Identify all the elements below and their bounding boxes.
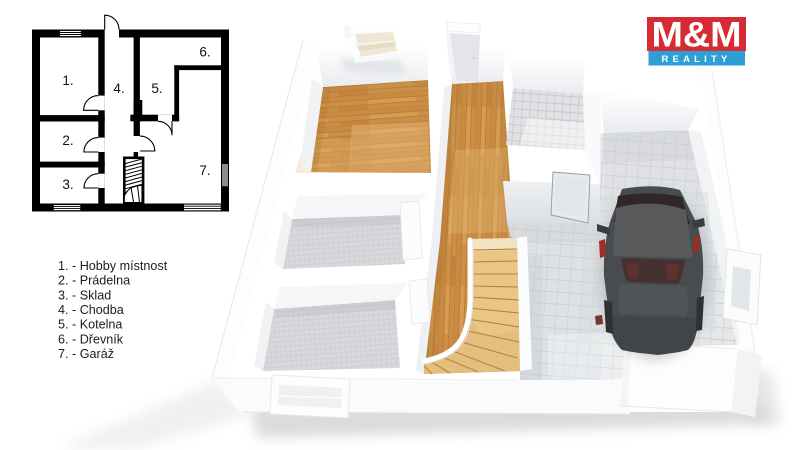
svg-text:1.: 1. <box>62 73 73 88</box>
svg-text:2. - Prádelna: 2. - Prádelna <box>58 274 130 288</box>
svg-text:3.: 3. <box>62 177 73 192</box>
svg-text:4.: 4. <box>113 81 124 96</box>
svg-text:REALITY: REALITY <box>661 54 731 65</box>
svg-text:6. - Dřevník: 6. - Dřevník <box>58 332 124 346</box>
svg-text:M&M: M&M <box>652 16 742 55</box>
svg-text:5.: 5. <box>151 81 162 96</box>
svg-text:3. - Sklad: 3. - Sklad <box>58 288 111 302</box>
svg-text:7.: 7. <box>199 163 210 178</box>
svg-text:7. - Garáž: 7. - Garáž <box>58 347 114 361</box>
svg-text:4. - Chodba: 4. - Chodba <box>58 303 124 317</box>
svg-text:1. - Hobby místnost: 1. - Hobby místnost <box>58 259 168 273</box>
svg-text:2.: 2. <box>62 133 73 148</box>
svg-text:6.: 6. <box>199 45 210 60</box>
svg-text:5. - Kotelna: 5. - Kotelna <box>58 318 122 332</box>
